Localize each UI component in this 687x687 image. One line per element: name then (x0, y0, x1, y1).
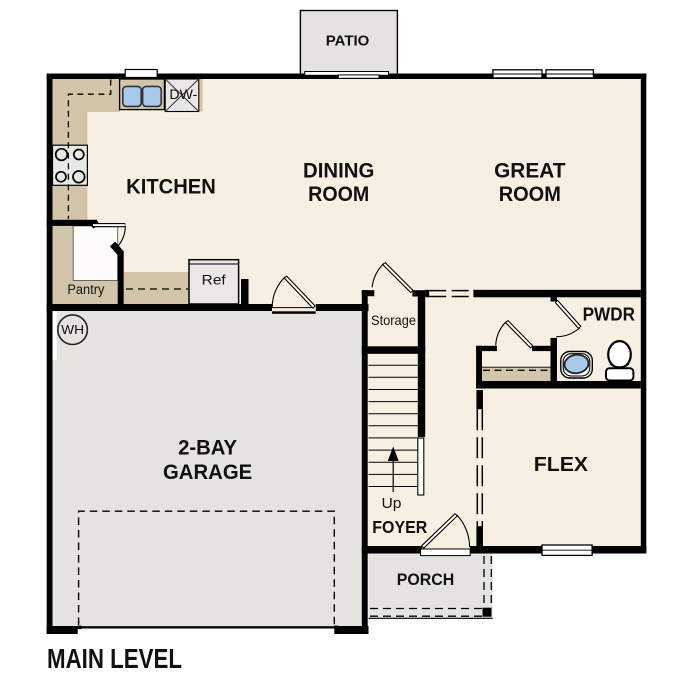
svg-text:PORCH: PORCH (397, 571, 455, 589)
svg-text:GREAT: GREAT (494, 158, 565, 182)
svg-text:WH: WH (61, 322, 84, 337)
svg-text:ROOM: ROOM (308, 182, 369, 206)
svg-text:Storage: Storage (371, 312, 416, 328)
svg-text:GARAGE: GARAGE (163, 460, 252, 484)
svg-text:PATIO: PATIO (326, 33, 370, 49)
svg-text:2-BAY: 2-BAY (178, 435, 237, 459)
svg-text:ROOM: ROOM (499, 182, 561, 206)
svg-text:DINING: DINING (303, 158, 374, 182)
svg-text:Ref: Ref (202, 272, 226, 288)
svg-text:KITCHEN: KITCHEN (126, 175, 216, 199)
svg-text:MAIN LEVEL: MAIN LEVEL (47, 643, 182, 674)
svg-text:DW-: DW- (169, 86, 197, 102)
svg-text:Pantry: Pantry (67, 282, 104, 297)
svg-text:FLEX: FLEX (534, 453, 589, 476)
svg-text:PWDR: PWDR (583, 304, 635, 324)
svg-text:Up: Up (382, 496, 402, 512)
svg-text:FOYER: FOYER (372, 517, 427, 537)
